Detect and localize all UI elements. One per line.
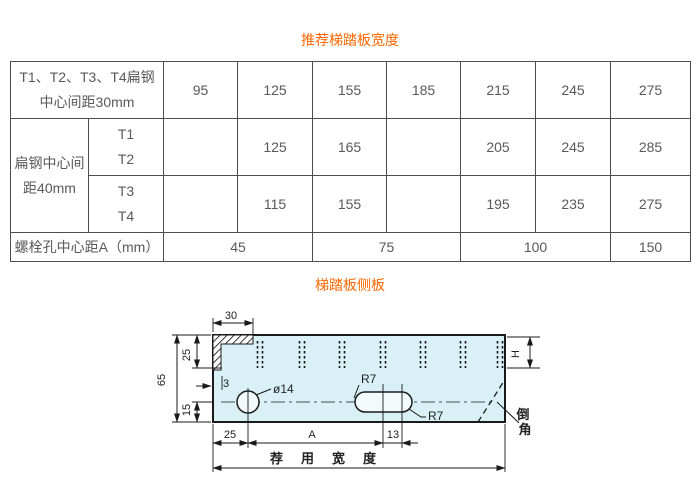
- cell: 125: [238, 119, 313, 176]
- dim-text-30: 30: [225, 310, 237, 322]
- cell: [387, 119, 461, 176]
- cell: 205: [461, 119, 536, 176]
- cell: 275: [611, 62, 691, 119]
- cell: 275: [611, 176, 691, 233]
- table-row: 螺栓孔中心距A（mm） 45 75 100 150: [11, 233, 691, 262]
- dim-text-a: A: [308, 429, 316, 441]
- dim-text-25-bottom: 25: [224, 429, 236, 441]
- table-title: 推荐梯踏板宽度: [0, 0, 700, 61]
- cell: 45: [164, 233, 313, 262]
- cell: 215: [461, 62, 536, 119]
- row1-label: T1、T2、T3、T4扁钢 中心间距30mm: [11, 62, 164, 119]
- width-spec-table: T1、T2、T3、T4扁钢 中心间距30mm 95 125 155 185 21…: [10, 61, 691, 262]
- cell: 245: [536, 119, 611, 176]
- chamfer-label-char1: 倒: [515, 407, 529, 422]
- cell: 125: [238, 62, 313, 119]
- drawing-title: 梯踏板侧板: [0, 262, 700, 298]
- slot-r-bottom-text: R7: [428, 409, 444, 423]
- row23-group-label: 扁钢中心间 距40mm: [11, 119, 89, 233]
- slot-r-top-text: R7: [361, 372, 377, 386]
- cell: [164, 176, 238, 233]
- side-plate-drawing: 30 25 65 15 3 ø14 R7 R7 H 25 A 13 倒 角 荐用…: [0, 298, 700, 480]
- dim-text-15: 15: [181, 404, 193, 416]
- product-spec-page: 推荐梯踏板宽度 T1、T2、T3、T4扁钢 中心间距30mm 95 125 15…: [0, 0, 700, 480]
- dim-text-25-left: 25: [181, 349, 193, 361]
- cell: 185: [387, 62, 461, 119]
- row2-sublabel: T1 T2: [89, 119, 164, 176]
- table-row: T3 T4 115 155 195 235 275: [11, 176, 691, 233]
- dim-text-65: 65: [156, 374, 168, 386]
- cell: [164, 119, 238, 176]
- cell: 155: [313, 62, 387, 119]
- cell: 100: [461, 233, 611, 262]
- row4-label: 螺栓孔中心距A（mm）: [11, 233, 164, 262]
- cell: 155: [313, 176, 387, 233]
- cell: 245: [536, 62, 611, 119]
- cell: 75: [313, 233, 461, 262]
- cell: [387, 176, 461, 233]
- table-row: T1、T2、T3、T4扁钢 中心间距30mm 95 125 155 185 21…: [11, 62, 691, 119]
- hole-dia-text: ø14: [273, 382, 294, 396]
- row3-sublabel: T3 T4: [89, 176, 164, 233]
- cell: 165: [313, 119, 387, 176]
- dim-text-13: 13: [387, 429, 399, 441]
- dim-text-h: H: [510, 350, 522, 358]
- cell: 95: [164, 62, 238, 119]
- cell: 195: [461, 176, 536, 233]
- overall-width-text: 荐用宽度: [269, 451, 394, 466]
- dim-text-3: 3: [223, 378, 229, 390]
- cell: 235: [536, 176, 611, 233]
- cell: 115: [238, 176, 313, 233]
- cell: 150: [611, 233, 691, 262]
- chamfer-label-char2: 角: [518, 422, 531, 437]
- cell: 285: [611, 119, 691, 176]
- table-row: 扁钢中心间 距40mm T1 T2 125 165 205 245 285: [11, 119, 691, 176]
- slot-obround: [355, 392, 412, 412]
